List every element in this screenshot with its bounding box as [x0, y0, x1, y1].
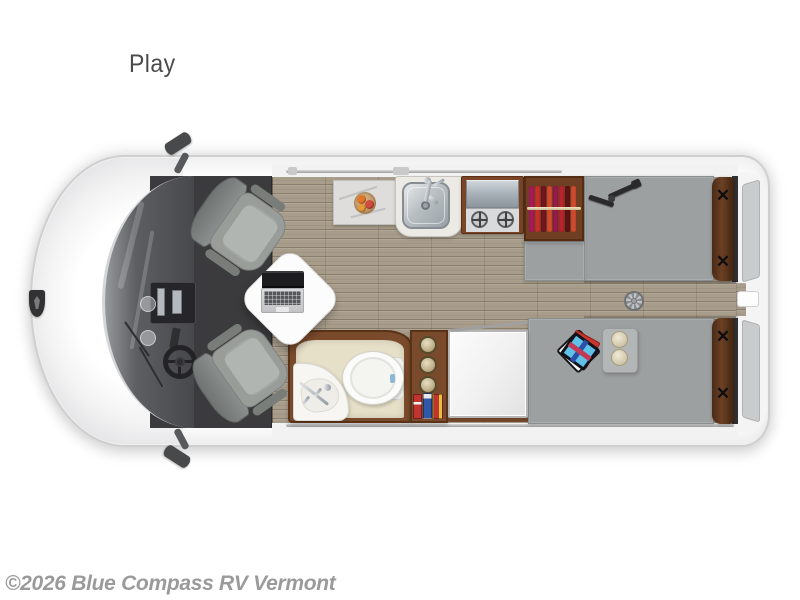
pillow-tie-icon: ✕	[712, 254, 734, 270]
canister	[419, 376, 437, 394]
pillow-tie-icon: ✕	[712, 188, 734, 204]
dealer-watermark: ©2026 Blue Compass RV Vermont	[5, 572, 335, 596]
gauge-cluster	[140, 296, 156, 312]
burner-grate	[505, 212, 507, 227]
pillow-tie-icon: ✕	[712, 329, 734, 345]
hvac-controls	[172, 290, 182, 314]
laptop-trackpad	[276, 307, 289, 312]
floorplan-image: ✕ ✕ ✕ ✕	[0, 0, 800, 600]
sink-drain	[421, 201, 430, 210]
pantry-box	[413, 394, 422, 419]
cooktop-lid	[466, 180, 519, 208]
arm-joint	[608, 195, 616, 203]
fruit	[365, 200, 374, 209]
aisle-edge	[584, 316, 738, 318]
rear-door-panel	[742, 319, 760, 422]
pillow-tie-icon: ✕	[712, 386, 734, 402]
canister	[419, 356, 437, 374]
laptop-keys	[264, 291, 301, 305]
toilet-flush-button	[390, 374, 395, 383]
gauge-cluster	[140, 330, 156, 346]
laptop-screen	[262, 271, 304, 288]
pantry-box	[433, 394, 443, 419]
radio-unit	[157, 288, 165, 316]
rear-door-panel	[742, 179, 760, 282]
pantry-box	[423, 393, 432, 419]
plate	[611, 331, 628, 348]
model-name-label: Play	[129, 50, 176, 79]
twin-bed-front-extension	[524, 241, 585, 281]
fruit	[358, 204, 366, 212]
door-track-roller	[393, 167, 409, 175]
aisle-edge	[584, 281, 738, 283]
burner-grate	[479, 212, 481, 227]
bath-faucet-head	[324, 384, 331, 391]
canister	[419, 336, 437, 354]
door-track-end	[288, 167, 297, 175]
closet-rod	[527, 207, 581, 210]
refrigerator	[448, 330, 528, 418]
plate	[611, 349, 628, 366]
arm-foot	[630, 178, 641, 189]
bottom-door-track	[286, 424, 734, 427]
sliding-door-track	[286, 170, 562, 173]
side-mirror-icon	[163, 130, 194, 156]
rear-step	[737, 291, 759, 307]
tv-mount-arm	[586, 178, 643, 215]
roof-fan-hub	[631, 298, 637, 304]
